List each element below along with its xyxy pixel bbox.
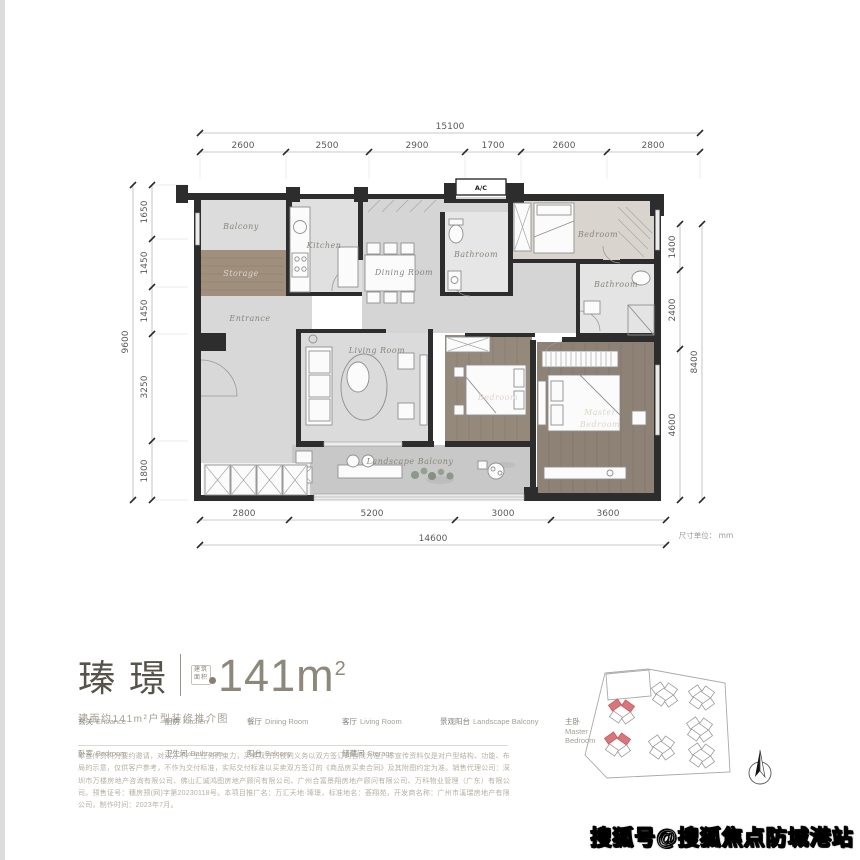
ac-label: A/C	[475, 184, 487, 192]
ac-unit: A/C	[456, 179, 506, 195]
dim-right-seg-1: 1400	[668, 235, 678, 258]
label-bathroom-1: Bathroom	[453, 250, 498, 259]
unit-note: 尺寸单位： mm	[679, 530, 734, 540]
legend-item: 餐厅Dining Room	[247, 716, 342, 745]
area-number-sup: 2	[335, 658, 347, 680]
estate-name: 瑧璟	[78, 648, 180, 702]
building-cluster-highlighted-2	[604, 732, 630, 757]
dim-left-seg-5: 1800	[140, 459, 150, 482]
label-master-2: Bedroom	[579, 420, 620, 429]
disclaimer-text: 本宣传资料为要约邀请，对双方不产生任何约束力，买卖双方的权利义务以双方签订的合同…	[78, 751, 510, 812]
building-cluster	[688, 743, 714, 768]
dim-top-seg-1: 2600	[232, 141, 255, 151]
legend-item: 客厅Living Room	[342, 716, 440, 745]
window-bedroom-1	[656, 210, 660, 250]
label-entrance: Entrance	[228, 314, 270, 323]
label-bedroom-2: Bedroom	[477, 393, 518, 402]
dim-bottom-seg-3: 3000	[492, 509, 515, 519]
legend-item: 景观阳台Landscape Balcony	[440, 716, 565, 745]
section-divider	[78, 745, 508, 746]
dim-bottom-seg-4: 3600	[597, 509, 620, 519]
site-notch	[606, 670, 651, 700]
dim-top-seg-2: 2500	[316, 141, 339, 151]
window-master	[656, 365, 660, 435]
dim-bottom-seg-2: 5200	[361, 509, 384, 519]
dim-top-total: 15100	[436, 122, 465, 132]
area-number-value: 141m	[218, 650, 335, 701]
site-plan	[572, 638, 782, 798]
label-kitchen: Kitchen	[306, 241, 342, 250]
label-living: Living Room	[348, 346, 406, 355]
watermark: 搜狐号@搜狐焦点防城港站	[591, 822, 854, 852]
label-dining: Dining Room	[374, 268, 433, 277]
floors	[198, 197, 657, 497]
area-badge-line2: 面积	[194, 675, 208, 683]
label-landscape: Landscape Balcony	[366, 457, 454, 466]
area-number: 141m2	[218, 653, 347, 698]
area-badge: 建筑 面积	[191, 665, 211, 685]
label-storage: Storage	[223, 269, 258, 278]
page-edge-strip	[0, 0, 5, 860]
label-bathroom-2: Bathroom	[593, 280, 638, 289]
floor-plan: 15100 2600 2500 2900 1700 2600 2800 9600…	[110, 115, 760, 570]
dim-left-seg-1: 1650	[140, 200, 150, 223]
dim-left-seg-2: 1450	[140, 251, 150, 274]
building-cluster-highlighted-1	[608, 699, 634, 724]
building-cluster	[688, 685, 714, 710]
dim-bottom-seg-1: 2800	[233, 509, 256, 519]
title-divider	[180, 654, 181, 696]
area-dot-icon	[209, 677, 216, 684]
legend-item: 厨房Kitchen	[165, 716, 247, 745]
label-bedroom-1: Bedroom	[577, 230, 618, 239]
area-badge-line1: 建筑	[194, 667, 208, 675]
dim-right-seg-3: 4600	[668, 413, 678, 436]
window-balcony	[196, 213, 200, 245]
label-master-1: Master	[583, 408, 617, 417]
compass-icon	[749, 750, 771, 784]
dim-right-seg-2: 2400	[668, 298, 678, 321]
dim-left-seg-4: 3250	[140, 375, 150, 398]
label-balcony: Balcony	[222, 222, 259, 231]
dim-top-seg-6: 2800	[642, 141, 665, 151]
legend-item: 玄关Entrance	[78, 716, 165, 745]
title-block: 瑧璟 建筑 面积 141m2 建面约141m²户型装修推介图	[78, 648, 510, 725]
building-cluster	[651, 682, 677, 707]
building-cluster	[686, 717, 712, 742]
building-cluster	[648, 735, 674, 760]
dim-right-total: 8400	[690, 350, 700, 373]
dim-top-seg-4: 1700	[482, 141, 505, 151]
dim-left-total: 9600	[121, 330, 131, 353]
sliding-door-living	[324, 442, 402, 446]
dim-left-seg-3: 1450	[140, 299, 150, 322]
entry-closets	[205, 465, 307, 495]
dim-top-seg-5: 2600	[553, 141, 576, 151]
dim-top-seg-3: 2900	[406, 141, 429, 151]
dim-bottom-total: 14600	[419, 534, 448, 544]
